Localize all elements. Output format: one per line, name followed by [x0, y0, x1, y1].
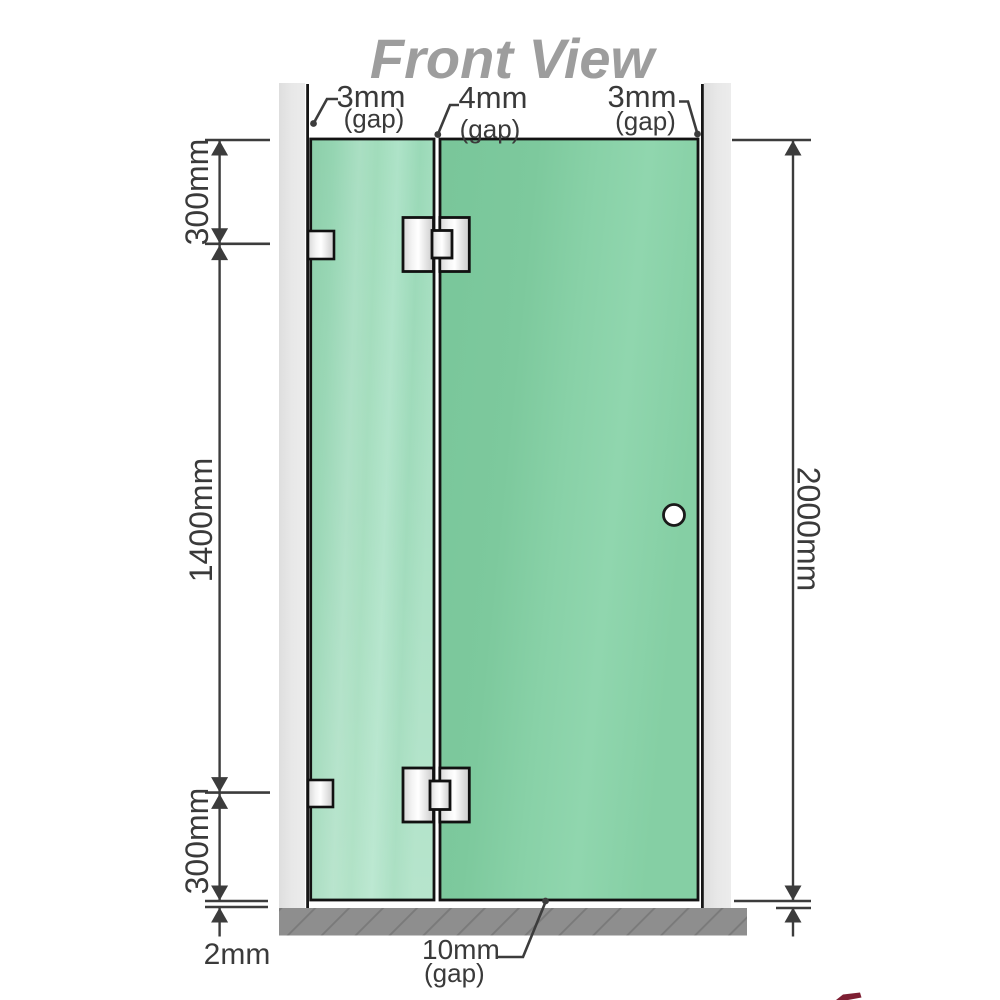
- svg-text:2mm: 2mm: [204, 938, 271, 971]
- svg-text:(gap): (gap): [344, 104, 405, 134]
- svg-text:1400mm: 1400mm: [183, 458, 219, 583]
- svg-text:4mm: 4mm: [459, 80, 528, 115]
- svg-text:300mm: 300mm: [179, 139, 215, 246]
- svg-text:(gap): (gap): [424, 958, 485, 988]
- svg-text:(gap): (gap): [460, 114, 521, 144]
- svg-text:2000mm: 2000mm: [791, 467, 827, 592]
- svg-text:(gap): (gap): [615, 106, 676, 136]
- svg-text:300mm: 300mm: [179, 788, 215, 895]
